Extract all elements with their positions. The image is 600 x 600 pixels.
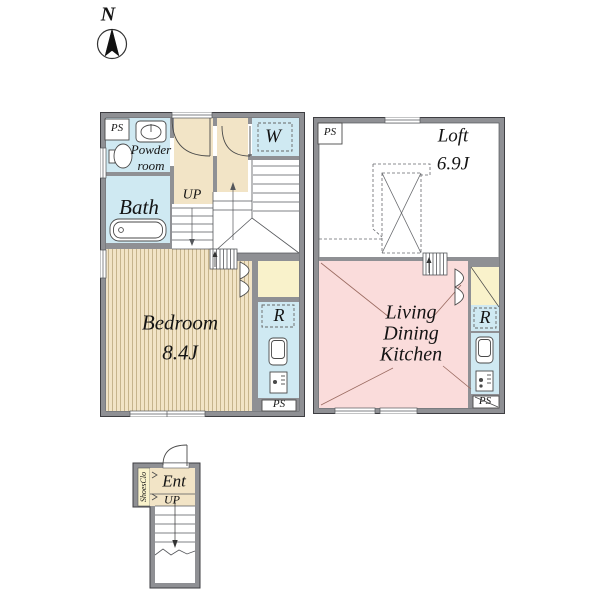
- window-bottom: [130, 411, 205, 417]
- bath-label: Bath: [119, 194, 159, 220]
- kitchen-sink-icon-1f: [269, 338, 287, 365]
- stove-icon-1f: [270, 372, 287, 393]
- bedroom-label: Bedroom 8.4J: [142, 308, 218, 369]
- ps-label-2f-bottom: PS: [479, 395, 491, 409]
- ps-label-1f-top: PS: [111, 122, 123, 136]
- loft-label: Loft 6.9J: [437, 122, 469, 177]
- window-bottom-2f-1: [335, 408, 375, 414]
- fridge-label-2f: R: [480, 306, 491, 329]
- washer-label: W: [265, 125, 281, 149]
- window-bottom-2f-2: [380, 408, 417, 414]
- ps-label-2f-top: PS: [324, 126, 336, 140]
- bathtub-icon: [110, 219, 166, 241]
- window-top: [172, 112, 212, 118]
- ldk-label: Living Dining Kitchen: [380, 303, 442, 366]
- north-compass: [98, 29, 127, 59]
- window-top-2f: [385, 117, 420, 123]
- window-left-1: [100, 148, 106, 178]
- toilet-icon: [136, 121, 166, 142]
- floor2-plan: [313, 117, 505, 414]
- up-label-1f: UP: [183, 186, 202, 204]
- entrance-plan: [130, 442, 205, 590]
- fridge-label-1f: R: [274, 304, 285, 327]
- bedroom-steps: [210, 249, 237, 269]
- floor2-stairs: [423, 253, 447, 275]
- up-label-entrance: UP: [164, 493, 180, 508]
- entrance-door: [163, 445, 189, 468]
- closet-1f: [258, 261, 299, 297]
- floor2-structure: [314, 118, 505, 414]
- window-left-2: [100, 250, 106, 278]
- stove-icon-2f: [476, 371, 493, 391]
- powder-room-label: Powder room: [131, 142, 171, 175]
- ps-label-1f-bottom: PS: [273, 398, 285, 412]
- entrance-label: Ent: [162, 470, 186, 491]
- kitchen-sink-icon-2f: [476, 337, 493, 363]
- floorplan-page: N PS Powder room Bath UP W Bedroom 8.4J …: [0, 0, 600, 600]
- stair-arrival-steps: [423, 253, 447, 275]
- north-label: N: [101, 3, 115, 28]
- shoes-closet-label: ShoesClo: [139, 472, 149, 502]
